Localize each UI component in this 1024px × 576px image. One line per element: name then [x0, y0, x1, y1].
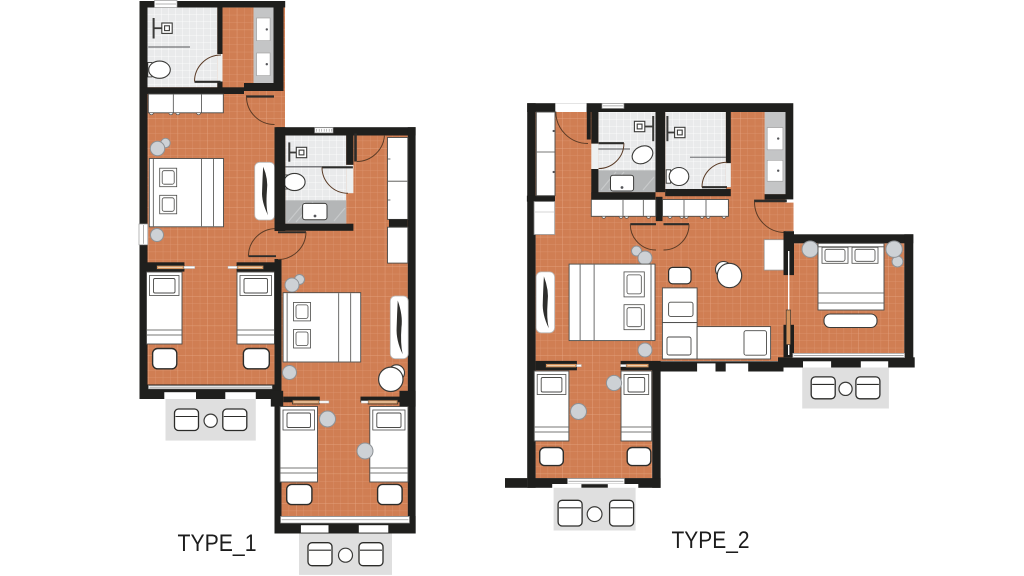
svg-text:TYPE_2: TYPE_2 [672, 527, 750, 554]
svg-text:TYPE_1: TYPE_1 [178, 530, 257, 557]
